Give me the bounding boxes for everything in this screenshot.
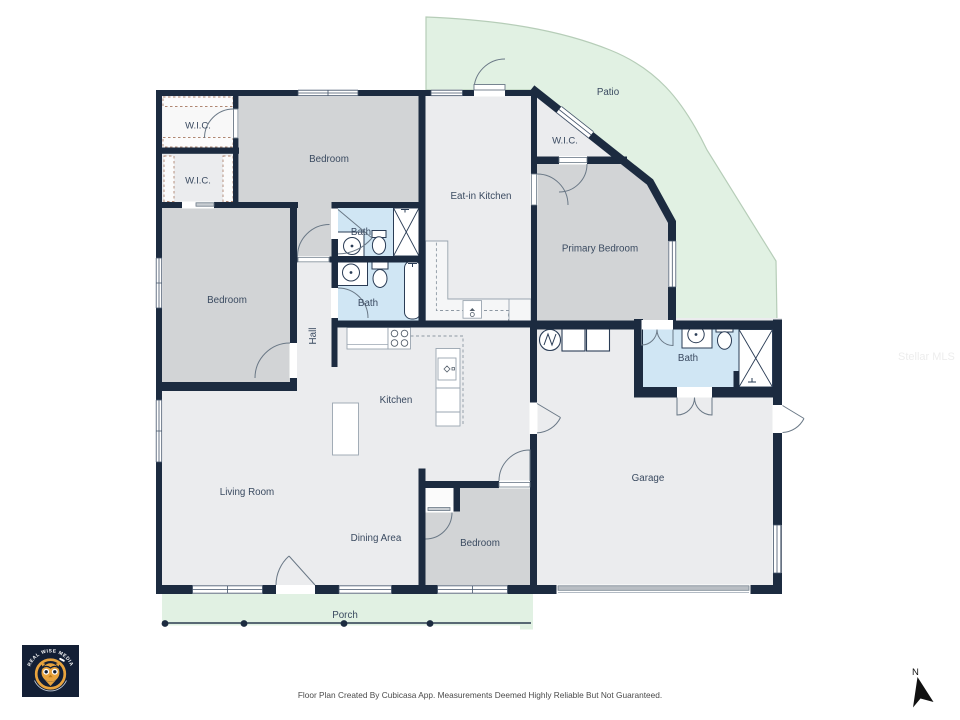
svg-text:W.I.C.: W.I.C. (552, 136, 578, 147)
svg-text:Patio: Patio (597, 87, 620, 98)
svg-text:Dining Area: Dining Area (351, 533, 402, 544)
svg-text:Porch: Porch (332, 610, 358, 621)
svg-text:Garage: Garage (632, 473, 665, 484)
svg-text:Bedroom: Bedroom (309, 154, 349, 165)
svg-text:Living Room: Living Room (220, 487, 274, 498)
svg-text:Stellar MLS: Stellar MLS (898, 351, 955, 363)
svg-text:Floor Plan Created By Cubicasa: Floor Plan Created By Cubicasa App. Meas… (298, 690, 662, 700)
svg-text:N: N (912, 667, 919, 678)
svg-text:Eat-in Kitchen: Eat-in Kitchen (451, 191, 512, 202)
svg-text:Bath: Bath (678, 353, 698, 364)
svg-text:Bedroom: Bedroom (460, 538, 500, 549)
svg-text:Hall: Hall (308, 328, 319, 345)
svg-text:Bedroom: Bedroom (207, 295, 247, 306)
svg-text:Primary Bedroom: Primary Bedroom (562, 244, 638, 255)
svg-text:Kitchen: Kitchen (380, 395, 413, 406)
svg-text:W.I.C.: W.I.C. (185, 176, 211, 187)
svg-text:Bath: Bath (358, 298, 378, 309)
svg-text:W.I.C.: W.I.C. (185, 121, 211, 132)
svg-text:Bath: Bath (351, 227, 371, 238)
